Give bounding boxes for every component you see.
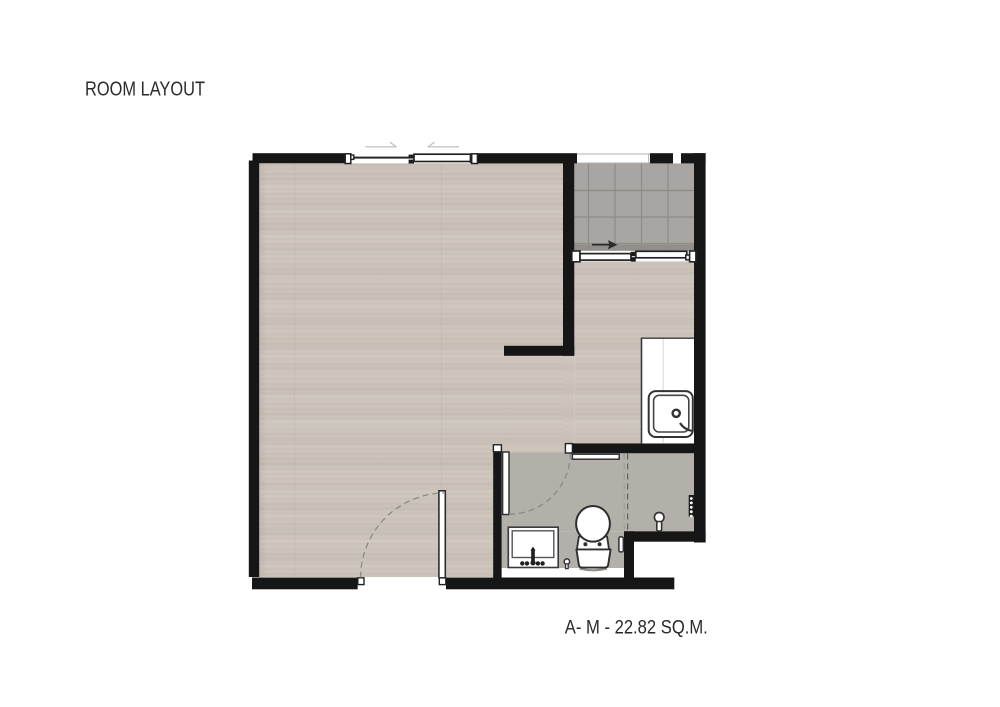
svg-text:ROOM LAYOUT: ROOM LAYOUT	[85, 79, 205, 101]
svg-text:A- M - 22.82 SQ.M.: A- M - 22.82 SQ.M.	[565, 616, 708, 638]
